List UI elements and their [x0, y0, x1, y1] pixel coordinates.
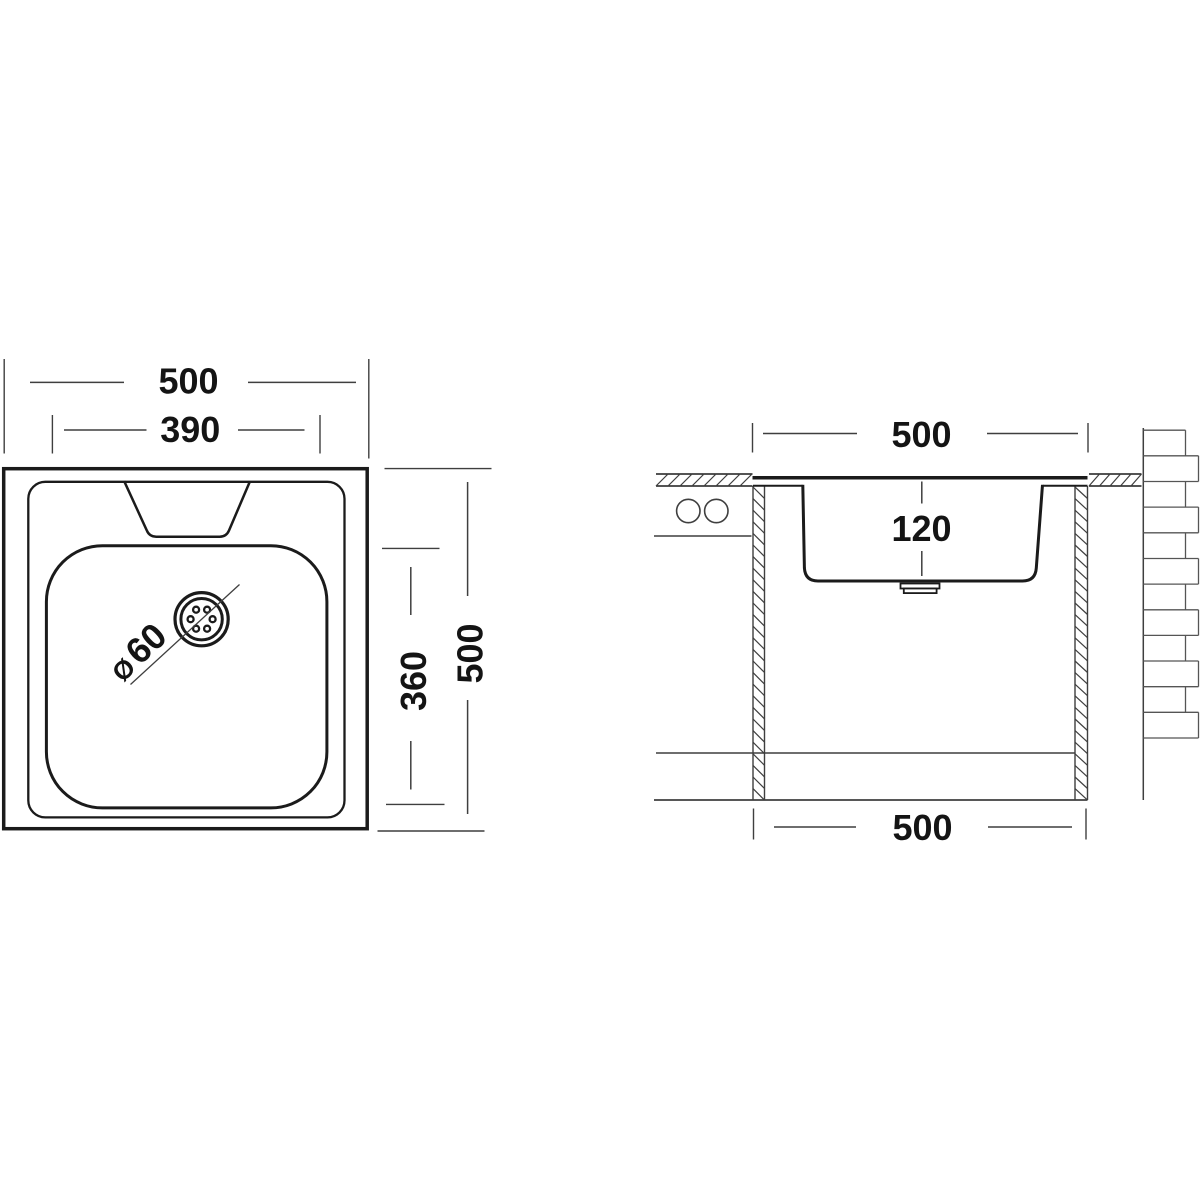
svg-text:120: 120: [891, 508, 951, 549]
svg-text:500: 500: [891, 414, 951, 455]
svg-text:500: 500: [892, 807, 952, 848]
svg-text:360: 360: [393, 651, 434, 711]
svg-text:500: 500: [450, 623, 491, 683]
svg-text:390: 390: [160, 409, 220, 450]
svg-text:500: 500: [158, 360, 218, 401]
